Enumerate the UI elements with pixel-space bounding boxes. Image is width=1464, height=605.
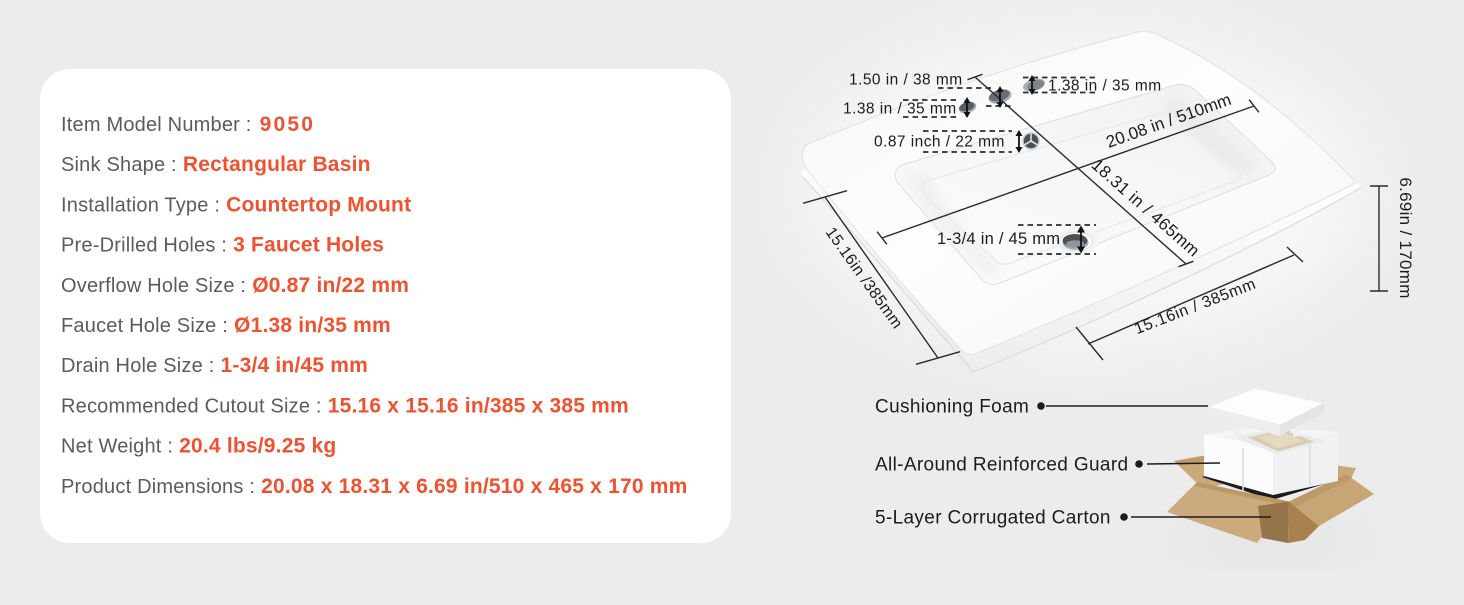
svg-text:1.50 in / 38 mm: 1.50 in / 38 mm	[849, 72, 963, 89]
svg-text:Drain Hole Size : 1-3/4 in/45: Drain Hole Size : 1-3/4 in/45 mm	[61, 354, 368, 377]
svg-text:0.87 inch / 22 mm: 0.87 inch / 22 mm	[874, 134, 1005, 151]
svg-text:Sink Shape : Rectangular Basin: Sink Shape : Rectangular Basin	[61, 153, 371, 176]
svg-text:All-Around Reinforced Guard: All-Around Reinforced Guard	[875, 455, 1128, 476]
svg-text:Pre-Drilled Holes : 3 Faucet H: Pre-Drilled Holes : 3 Faucet Holes	[61, 234, 384, 257]
svg-text:Recommended Cutout Size : 15.: Recommended Cutout Size : 15.16 x 15.16 …	[61, 394, 629, 417]
svg-text:1.38 in / 35 mm: 1.38 in / 35 mm	[843, 101, 957, 118]
svg-text:Cushioning Foam: Cushioning Foam	[875, 397, 1029, 418]
svg-text:6.69in / 170mm: 6.69in / 170mm	[1396, 177, 1415, 298]
svg-text:Faucet Hole Size : Ø1.38 in/35: Faucet Hole Size : Ø1.38 in/35 mm	[61, 314, 391, 337]
svg-text:Installation Type : Countertop: Installation Type : Countertop Mount	[61, 193, 411, 216]
svg-text:Item Model Number : 9050: Item Model Number : 9050	[61, 113, 315, 136]
svg-text:5-Layer Corrugated Carton: 5-Layer Corrugated Carton	[875, 508, 1111, 529]
svg-text:Overflow Hole Size : Ø0.87 in/: Overflow Hole Size : Ø0.87 in/22 mm	[61, 274, 409, 297]
svg-text:Net Weight : 20.4 lbs/9.25 kg: Net Weight : 20.4 lbs/9.25 kg	[61, 435, 336, 458]
svg-text:1-3/4 in / 45 mm: 1-3/4 in / 45 mm	[937, 230, 1060, 248]
svg-text:Product Dimensions : 20.08 x 1: Product Dimensions : 20.08 x 18.31 x 6.6…	[61, 475, 688, 498]
